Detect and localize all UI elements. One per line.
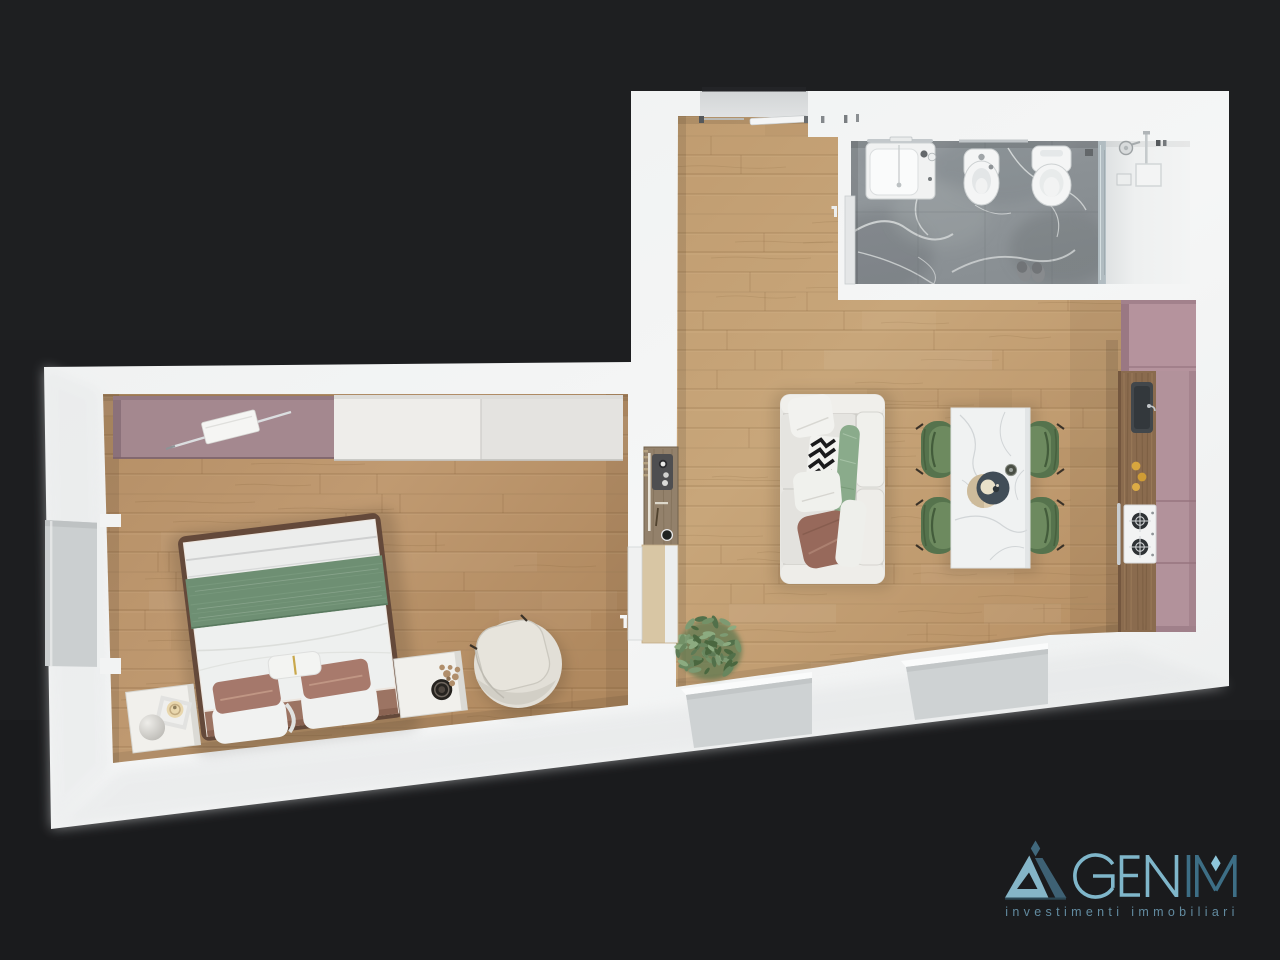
svg-text:investimenti immobiliari: investimenti immobiliari (1005, 905, 1239, 919)
